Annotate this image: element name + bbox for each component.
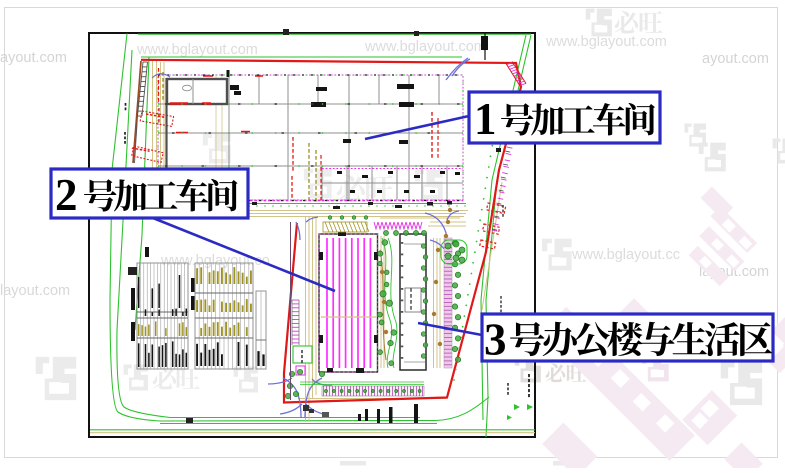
svg-text:ayout.com: ayout.com [702, 51, 769, 67]
svg-text:www.bglayout.cc: www.bglayout.cc [571, 247, 680, 263]
svg-text:3: 3 [484, 314, 507, 364]
svg-text:www.bglayout.com: www.bglayout.com [364, 39, 486, 55]
svg-text:2: 2 [55, 170, 78, 220]
svg-text:ayout.com: ayout.com [0, 50, 67, 66]
svg-text:www.bglayout.com: www.bglayout.com [136, 42, 258, 58]
svg-text:1: 1 [474, 94, 497, 144]
svg-text:layout.com: layout.com [0, 283, 70, 299]
